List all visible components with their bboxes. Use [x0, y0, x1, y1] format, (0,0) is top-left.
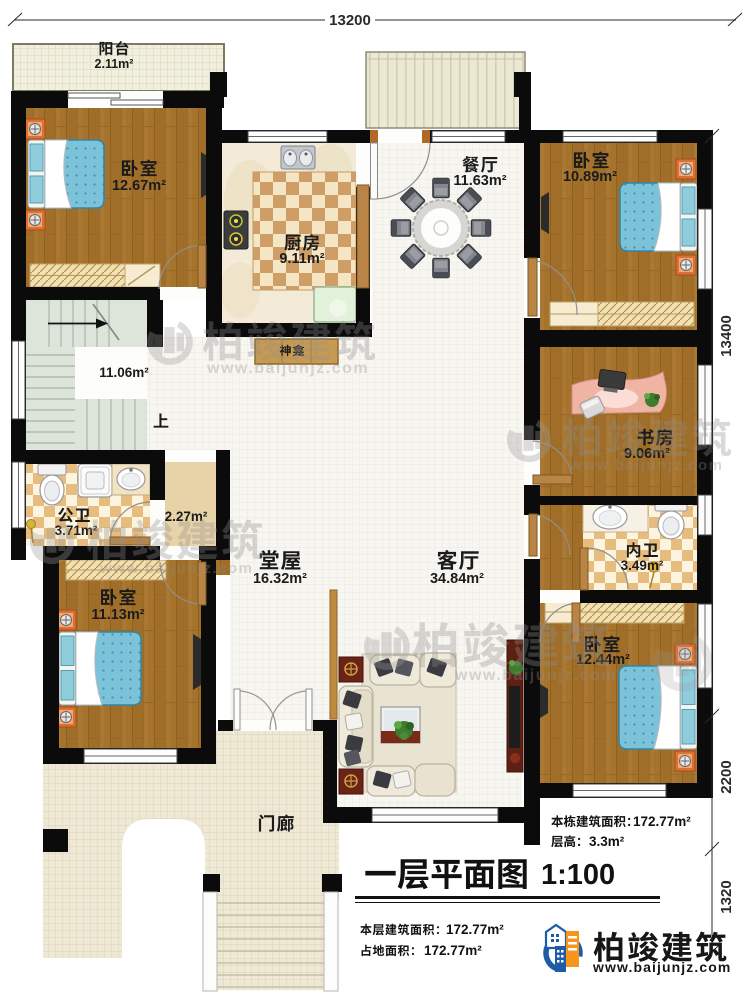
svg-text:3.3m²: 3.3m²: [589, 834, 625, 849]
svg-text:34.84m²: 34.84m²: [430, 571, 484, 587]
svg-text:2200: 2200: [718, 760, 735, 793]
svg-text:11.06m²: 11.06m²: [99, 365, 149, 380]
svg-text:11.63m²: 11.63m²: [453, 173, 506, 189]
svg-text:13400: 13400: [718, 315, 735, 357]
svg-text:172.77m²: 172.77m²: [633, 814, 691, 829]
svg-text:www.baijunjz.com: www.baijunjz.com: [569, 457, 723, 474]
svg-text:10.89m²: 10.89m²: [563, 169, 617, 185]
svg-text:3.49m²: 3.49m²: [621, 558, 664, 573]
svg-text:1320: 1320: [718, 880, 735, 913]
svg-text:1:100: 1:100: [541, 859, 615, 891]
svg-text:2.11m²: 2.11m²: [95, 57, 134, 71]
svg-text:11.13m²: 11.13m²: [91, 607, 144, 623]
svg-text:172.77m²: 172.77m²: [424, 943, 482, 958]
svg-text:12.67m²: 12.67m²: [112, 178, 166, 194]
svg-text:www.baijunjz.com: www.baijunjz.com: [99, 560, 253, 577]
svg-text:16.32m²: 16.32m²: [253, 571, 307, 587]
svg-text:9.11m²: 9.11m²: [279, 251, 324, 267]
svg-text:www.baijunjz.com: www.baijunjz.com: [454, 667, 617, 684]
svg-text:13200: 13200: [329, 12, 371, 29]
svg-text:www.baijunjz.com: www.baijunjz.com: [592, 959, 731, 975]
svg-text:172.77m²: 172.77m²: [446, 922, 504, 937]
svg-text:www.baijunjz.com: www.baijunjz.com: [206, 360, 369, 377]
